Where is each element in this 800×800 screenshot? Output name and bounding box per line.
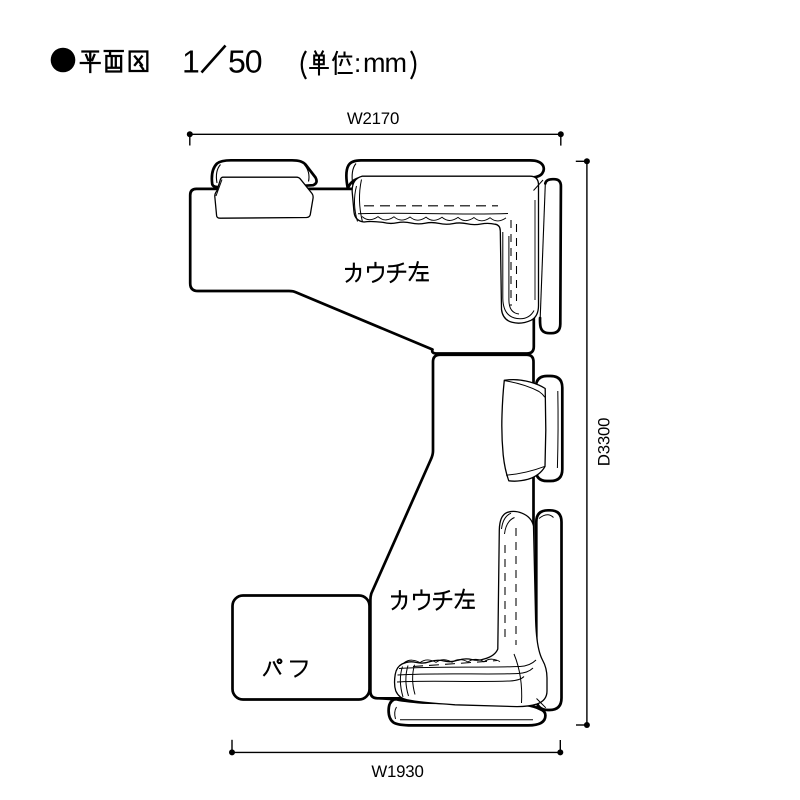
svg-text:50: 50 [228, 44, 262, 80]
svg-text:W1930: W1930 [371, 762, 423, 781]
svg-text::: : [354, 48, 361, 78]
svg-text:mm: mm [363, 48, 406, 78]
svg-text:1: 1 [182, 44, 200, 80]
svg-text:W2170: W2170 [347, 109, 399, 128]
svg-text:D3300: D3300 [595, 418, 614, 466]
